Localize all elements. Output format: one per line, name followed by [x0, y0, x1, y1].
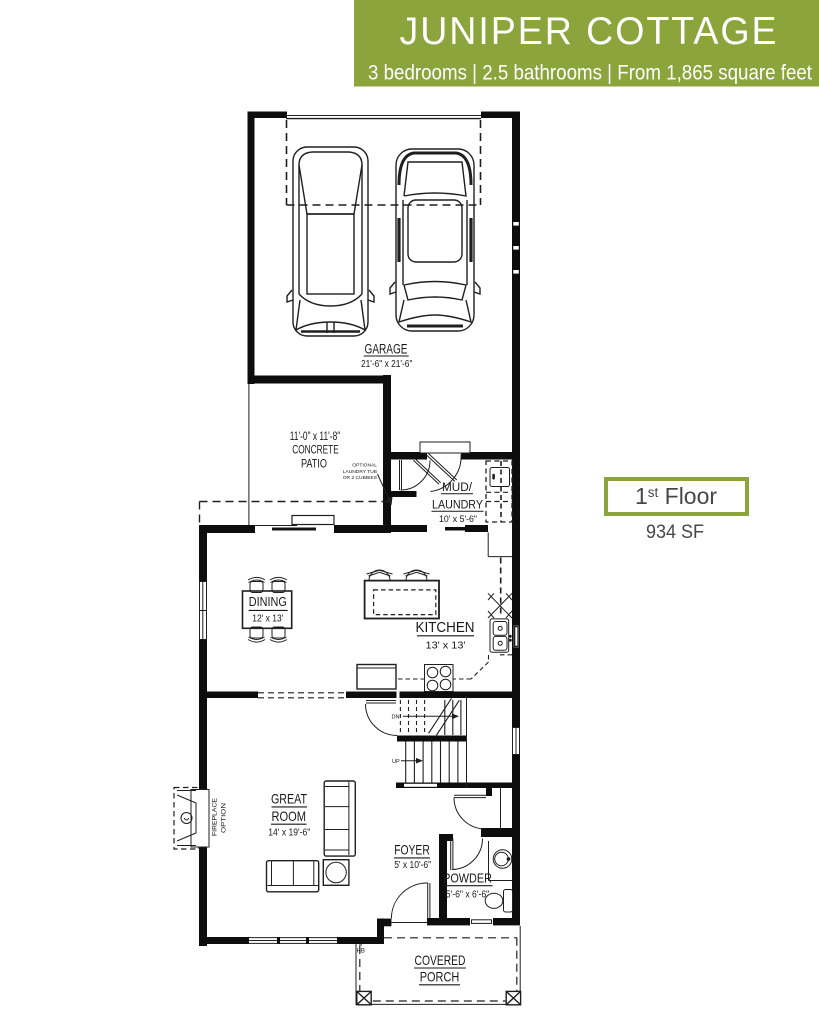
svg-text:21'-6" x 21'-6": 21'-6" x 21'-6": [361, 359, 413, 370]
svg-text:UP: UP: [392, 759, 400, 765]
svg-text:GREAT: GREAT: [271, 791, 307, 807]
svg-text:ROOM: ROOM: [271, 808, 306, 824]
svg-text:5' x 10'-6": 5' x 10'-6": [394, 860, 431, 871]
svg-text:1st Floor: 1st Floor: [635, 483, 717, 509]
svg-text:MUD/: MUD/: [442, 482, 473, 494]
svg-text:14' x 19'-6": 14' x 19'-6": [268, 828, 310, 839]
svg-text:OR 2 CUBBIES: OR 2 CUBBIES: [343, 475, 378, 481]
svg-text:11'-0" x 11'-8": 11'-0" x 11'-8": [290, 431, 341, 443]
svg-text:12' x 13': 12' x 13': [252, 614, 283, 625]
svg-text:POWDER: POWDER: [443, 872, 492, 886]
svg-text:LAUNDRY: LAUNDRY: [432, 498, 483, 512]
svg-text:DN: DN: [392, 715, 400, 721]
svg-text:HB: HB: [357, 949, 365, 955]
svg-text:OPTION: OPTION: [221, 803, 228, 833]
svg-text:10' x 5'-6": 10' x 5'-6": [439, 514, 477, 525]
svg-text:3 bedrooms | 2.5 bathrooms | F: 3 bedrooms | 2.5 bathrooms | From 1,865 …: [368, 62, 812, 85]
svg-text:PORCH: PORCH: [420, 969, 460, 985]
svg-text:934 SF: 934 SF: [646, 522, 704, 543]
svg-text:JUNIPER COTTAGE: JUNIPER COTTAGE: [400, 10, 779, 53]
svg-text:PATIO: PATIO: [301, 459, 327, 471]
svg-text:CONCRETE: CONCRETE: [292, 445, 339, 457]
svg-text:OPTIONAL: OPTIONAL: [352, 463, 377, 469]
svg-text:FOYER: FOYER: [394, 842, 430, 858]
svg-text:KITCHEN: KITCHEN: [416, 619, 475, 636]
svg-text:5'-6" x 6'-6": 5'-6" x 6'-6": [446, 890, 490, 901]
svg-text:COVERED: COVERED: [415, 952, 466, 968]
svg-text:FIREPLACE: FIREPLACE: [212, 797, 219, 836]
svg-text:GARAGE: GARAGE: [365, 342, 408, 357]
svg-text:LAUNDRY TUB: LAUNDRY TUB: [343, 469, 377, 475]
svg-text:13' x 13': 13' x 13': [426, 640, 466, 652]
svg-text:DINING: DINING: [249, 595, 287, 609]
